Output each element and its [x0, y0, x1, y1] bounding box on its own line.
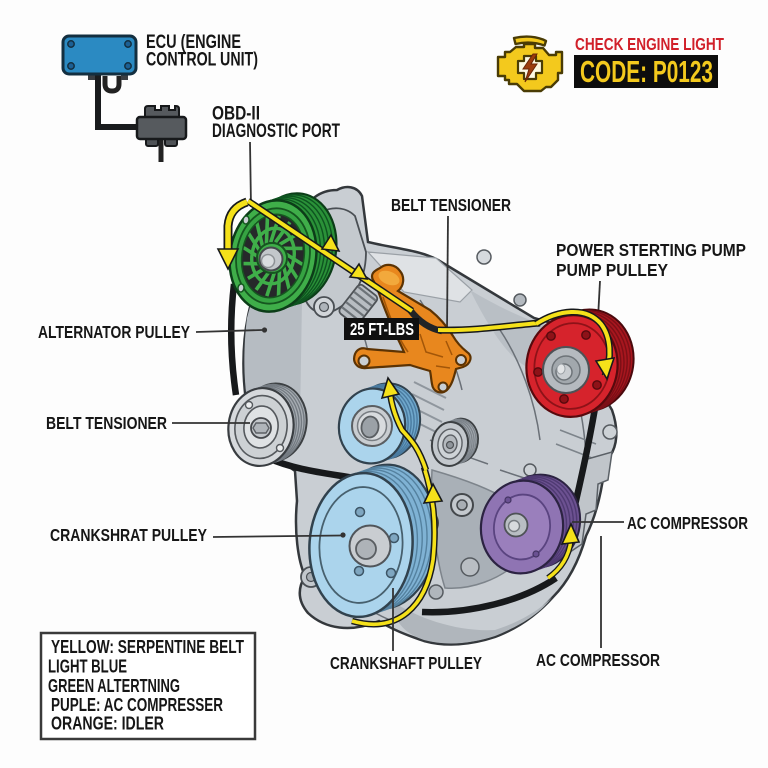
svg-text:CHECK ENGINE LIGHT: CHECK ENGINE LIGHT	[575, 34, 724, 54]
svg-text:CODE: P0123: CODE: P0123	[580, 54, 713, 89]
svg-text:25 FT-LBS: 25 FT-LBS	[350, 319, 414, 339]
svg-text:DIAGNOSTIC PORT: DIAGNOSTIC PORT	[212, 121, 340, 142]
svg-text:CRANKSHAFT PULLEY: CRANKSHAFT PULLEY	[330, 653, 482, 673]
svg-text:BELT TENSIONER: BELT TENSIONER	[46, 413, 167, 433]
svg-text:ALTERNATOR PULLEY: ALTERNATOR PULLEY	[38, 322, 190, 342]
svg-text:AC COMPRESSOR: AC COMPRESSOR	[536, 650, 660, 670]
svg-text:POWER STERTING PUMP: POWER STERTING PUMP	[556, 240, 746, 260]
svg-text:ORANGE: IDLER: ORANGE: IDLER	[51, 714, 164, 734]
svg-text:AC COMPRESSOR: AC COMPRESSOR	[627, 513, 748, 533]
svg-text:LIGHT BLUE: LIGHT BLUE	[48, 657, 127, 677]
svg-text:PUPLE: AC COMPRESSER: PUPLE: AC COMPRESSER	[51, 695, 223, 715]
svg-text:CONTROL UNIT): CONTROL UNIT)	[146, 50, 258, 71]
svg-text:CRANKSHRAT PULLEY: CRANKSHRAT PULLEY	[50, 525, 207, 545]
svg-text:BELT TENSIONER: BELT TENSIONER	[391, 195, 511, 215]
svg-text:PUMP PULLEY: PUMP PULLEY	[556, 260, 668, 280]
svg-text:YELLOW: SERPENTINE BELT: YELLOW: SERPENTINE BELT	[51, 637, 244, 657]
svg-text:GREEN ALTERTNING: GREEN ALTERTNING	[48, 676, 180, 696]
